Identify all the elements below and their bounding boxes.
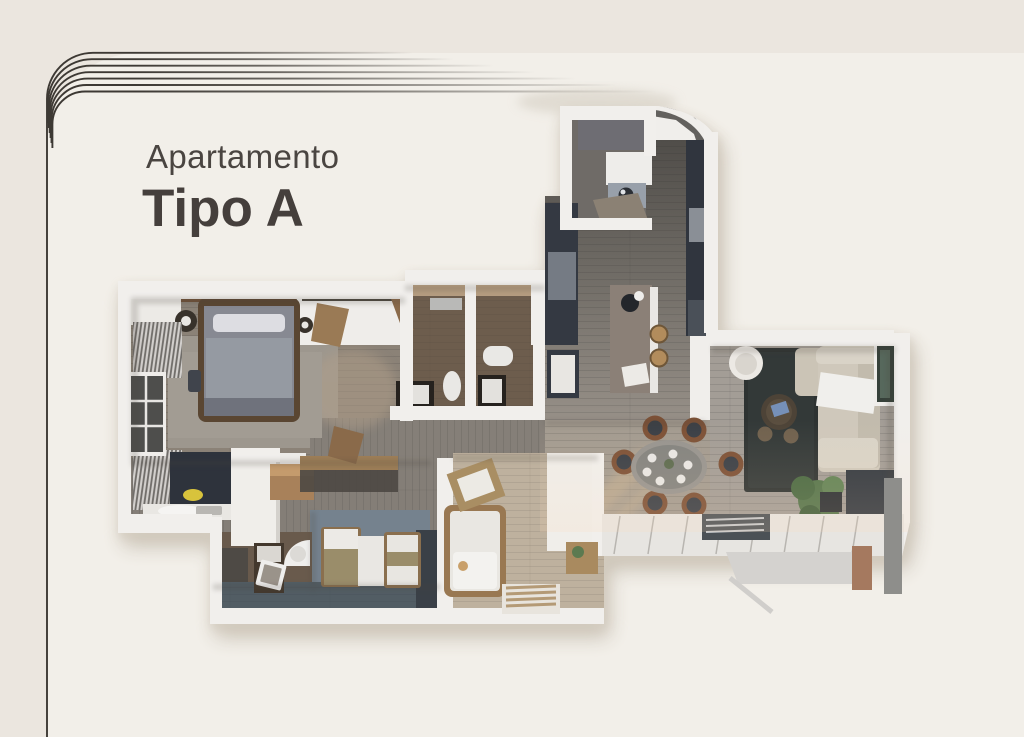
svg-text:Apartamento: Apartamento bbox=[146, 138, 339, 175]
svg-text:Tipo A: Tipo A bbox=[142, 179, 304, 238]
